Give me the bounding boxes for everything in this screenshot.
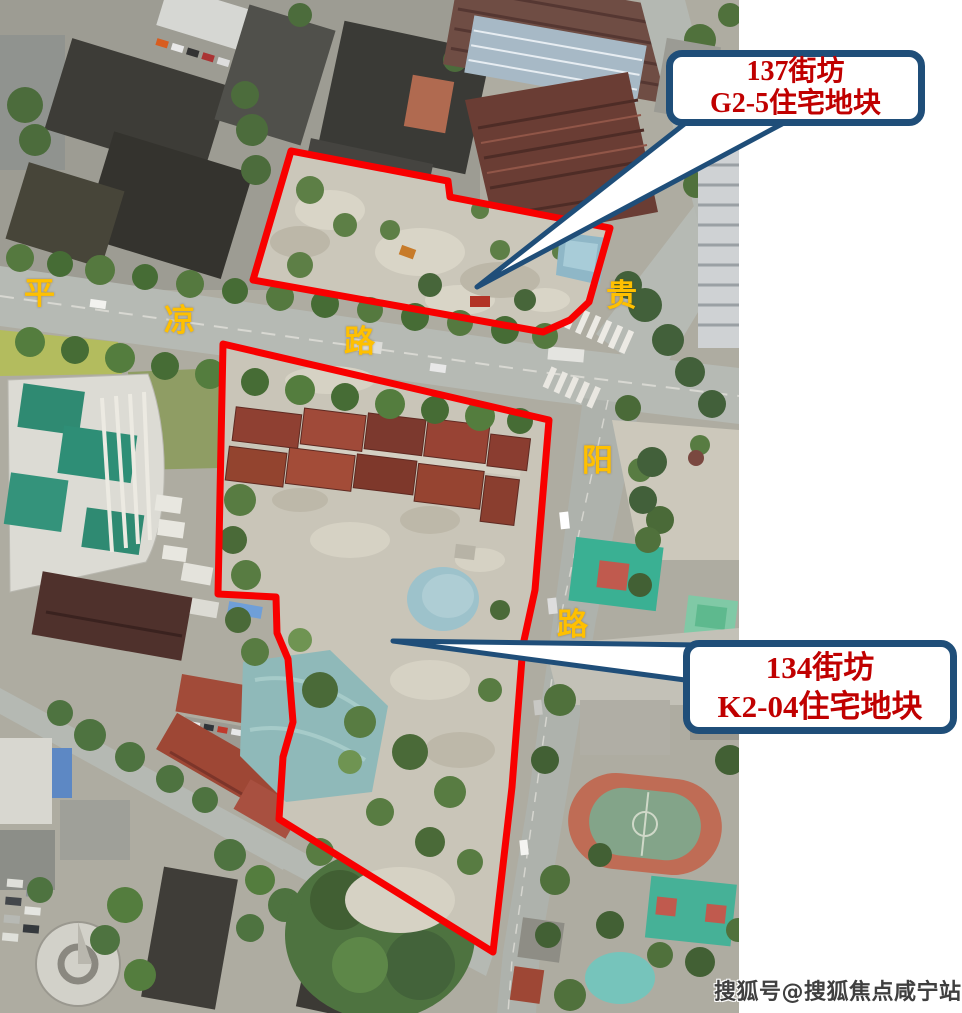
parcel-callout-134-line1: 134街坊	[766, 648, 875, 687]
basketball-court-south	[645, 876, 737, 947]
parcel-callout-137-line2: G2-5住宅地块	[710, 88, 881, 120]
aerial-photo-art	[0, 0, 962, 1013]
road-label-pingliang-char-2: 路	[344, 327, 375, 358]
parcel-callout-137: 137街坊 G2-5住宅地块	[666, 50, 925, 126]
parcel-callout-137-line1: 137街坊	[746, 56, 844, 88]
road-label-pingliang-char-0: 平	[24, 279, 55, 310]
red-container	[470, 296, 490, 307]
sohu-watermark: 搜狐号@搜狐焦点咸宁站	[714, 974, 962, 1006]
road-label-guiyang-char-0: 贵	[606, 281, 637, 312]
annotated-aerial-map: 平 凉 路 贵 阳 路 137街坊 G2-5住宅地块 134街坊 K2-04住宅…	[0, 0, 962, 1013]
aerial-photo	[0, 0, 750, 1013]
road-label-pingliang-char-1: 凉	[164, 306, 195, 337]
road-label-guiyang-char-2: 路	[557, 610, 588, 641]
parcel-callout-134: 134街坊 K2-04住宅地块	[683, 640, 957, 734]
road-label-guiyang-char-1: 阳	[582, 446, 613, 477]
parcel-callout-134-line2: K2-04住宅地块	[718, 687, 923, 726]
building-east-highrise	[698, 148, 739, 348]
